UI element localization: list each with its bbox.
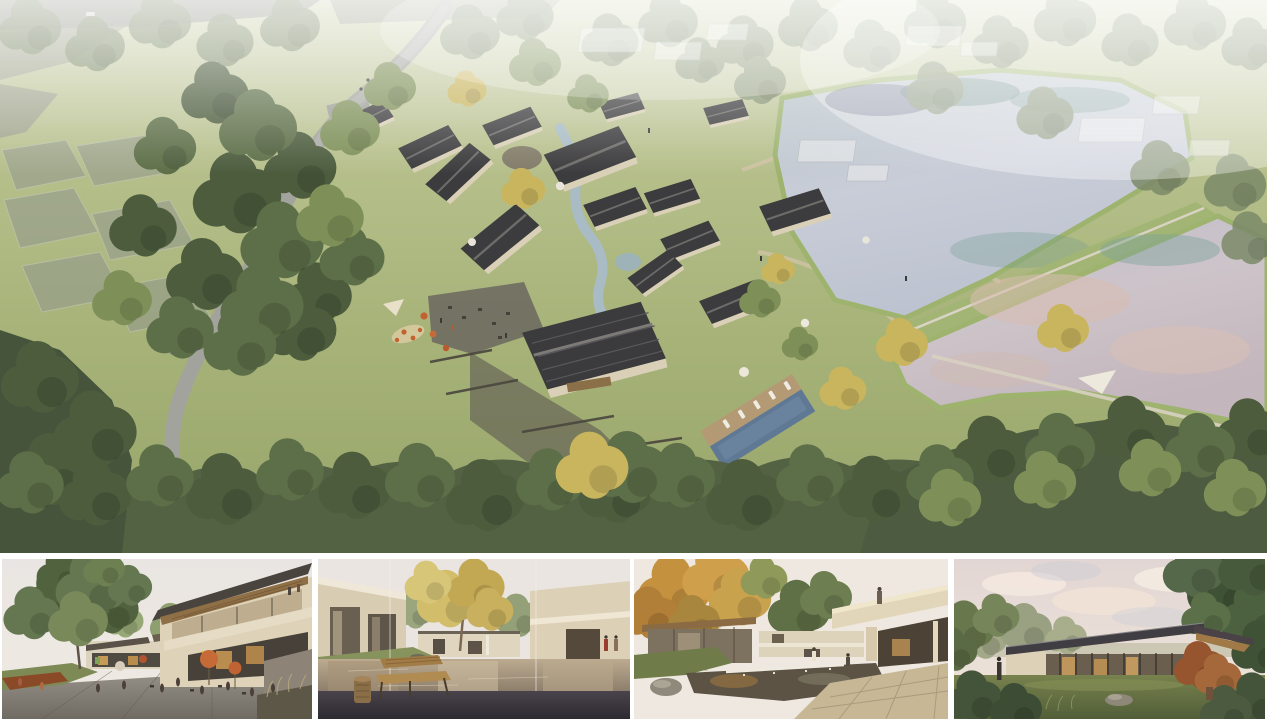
atmospheric-haze xyxy=(0,0,1267,180)
render-board xyxy=(0,0,1267,724)
figure-red-coat xyxy=(604,639,608,651)
thumbnail-pond-courtyard-render xyxy=(318,559,630,719)
figure-tan-coat xyxy=(614,639,618,651)
stump-stool xyxy=(354,676,371,703)
thumbnail-pavilion-render xyxy=(954,559,1265,719)
aerial-masterplan-render xyxy=(0,0,1267,553)
figure-on-balcony xyxy=(877,591,882,604)
thumbnail-waterfall-courtyard-render xyxy=(634,559,948,719)
thumbnail-plaza-render xyxy=(2,559,312,719)
figure-standing xyxy=(997,662,1002,680)
right-building xyxy=(530,581,630,664)
